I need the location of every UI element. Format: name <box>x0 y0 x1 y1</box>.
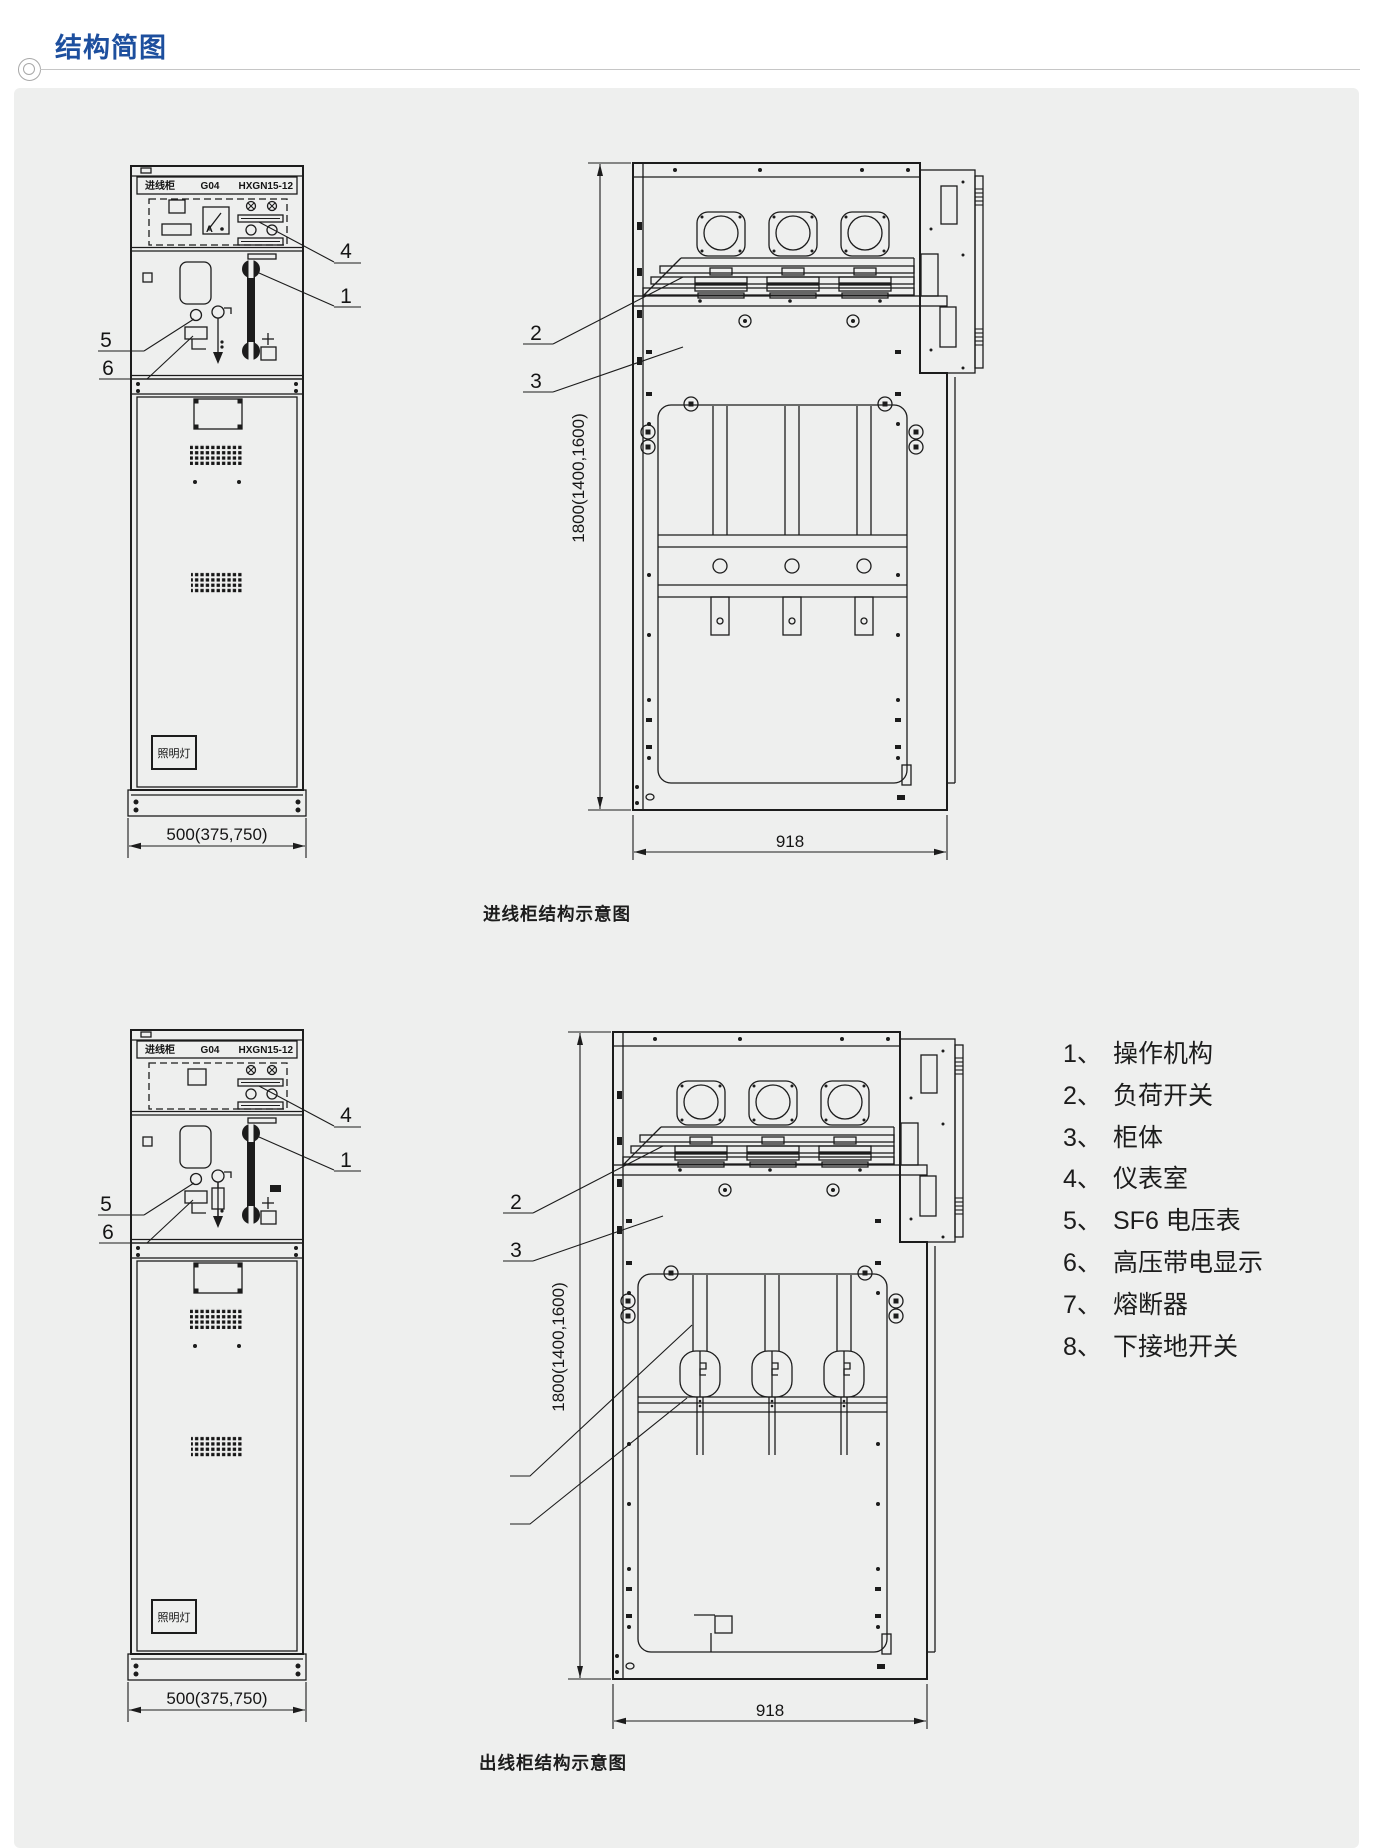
ammeter-label: A <box>206 224 213 235</box>
legend-item-1: 1、 操作机构 <box>1063 1034 1263 1076</box>
front-width-dimension: 500(375,750) <box>166 825 267 844</box>
legend-num: 3、 <box>1063 1118 1113 1154</box>
legend-num: 7、 <box>1063 1285 1113 1321</box>
callout-5: 5 <box>100 329 112 352</box>
callout-leaders <box>523 277 683 392</box>
nameplate-name: 进线柜 <box>145 179 175 192</box>
legend-num: 1、 <box>1063 1034 1113 1070</box>
legend-item-8: 8、 下接地开关 <box>1063 1327 1263 1369</box>
parts-legend: 1、 操作机构 2、 负荷开关 3、 柜体 4、 仪表室 5、 SF6 电压表 … <box>1063 1034 1263 1368</box>
callout-leaders <box>503 1146 663 1261</box>
callout-4: 4 <box>340 1104 352 1127</box>
callout-2: 2 <box>530 322 542 345</box>
outgoing-front-view: 进线柜 G04 HXGN15-12 照明灯 500(375,750) 4 1 5… <box>98 1030 361 1722</box>
callout-4: 4 <box>340 240 352 263</box>
nameplate-model: G04 <box>201 181 220 192</box>
legend-item-7: 7、 熔断器 <box>1063 1285 1263 1327</box>
legend-label: 操作机构 <box>1113 1034 1213 1070</box>
legend-label: 仪表室 <box>1113 1159 1188 1195</box>
fuse-indicator <box>188 1069 281 1216</box>
outgoing-side-view: 1800(1400,1600) 918 2 3 <box>503 1032 963 1729</box>
legend-num: 4、 <box>1063 1159 1113 1195</box>
fuse-earthing-leaders <box>510 1325 692 1524</box>
side-width-dimension: 918 <box>756 1701 784 1720</box>
legend-item-2: 2、 负荷开关 <box>1063 1076 1263 1118</box>
legend-item-5: 5、 SF6 电压表 <box>1063 1201 1263 1243</box>
legend-num: 8、 <box>1063 1327 1113 1363</box>
callout-6: 6 <box>102 357 114 380</box>
fuse-section <box>638 1275 887 1652</box>
legend-label: 高压带电显示 <box>1113 1243 1263 1279</box>
lamp-label: 照明灯 <box>158 1611 191 1624</box>
front-width-dimension: 500(375,750) <box>166 1689 267 1708</box>
lamp-label: 照明灯 <box>158 747 191 760</box>
side-height-dimension: 1800(1400,1600) <box>549 1282 568 1412</box>
callout-1: 1 <box>340 285 352 308</box>
legend-label: 负荷开关 <box>1113 1076 1213 1112</box>
callout-6: 6 <box>102 1221 114 1244</box>
legend-label: 下接地开关 <box>1113 1327 1238 1363</box>
structure-diagrams: A 进线柜 G04 HXGN15-12 照明灯 500(375,750) 4 1… <box>0 0 1373 1848</box>
outgoing-diagram-caption: 出线柜结构示意图 <box>479 1750 627 1775</box>
nameplate-type: HXGN15-12 <box>239 1045 294 1056</box>
incoming-side-view: 1800(1400,1600) 918 2 3 <box>523 163 983 860</box>
callout-leaders <box>98 222 361 379</box>
callout-leaders <box>98 1086 361 1243</box>
callout-5: 5 <box>100 1193 112 1216</box>
legend-item-3: 3、 柜体 <box>1063 1118 1263 1160</box>
legend-item-6: 6、 高压带电显示 <box>1063 1243 1263 1285</box>
side-width-dimension: 918 <box>776 832 804 851</box>
callout-2: 2 <box>510 1191 522 1214</box>
legend-label: 熔断器 <box>1113 1285 1188 1321</box>
nameplate-model: G04 <box>201 1045 220 1056</box>
busbar-section <box>658 406 907 635</box>
ammeter <box>162 200 229 235</box>
nameplate-type: HXGN15-12 <box>239 181 294 192</box>
incoming-front-view: A 进线柜 G04 HXGN15-12 照明灯 500(375,750) 4 1… <box>98 166 361 858</box>
callout-3: 3 <box>530 370 542 393</box>
incoming-diagram-caption: 进线柜结构示意图 <box>483 901 631 926</box>
legend-label: 柜体 <box>1113 1118 1163 1154</box>
legend-num: 2、 <box>1063 1076 1113 1112</box>
side-height-dimension: 1800(1400,1600) <box>569 413 588 543</box>
legend-num: 5、 <box>1063 1201 1113 1237</box>
nameplate-name: 进线柜 <box>145 1043 175 1056</box>
callout-3: 3 <box>510 1239 522 1262</box>
legend-num: 6、 <box>1063 1243 1113 1279</box>
callout-1: 1 <box>340 1149 352 1172</box>
legend-label: SF6 电压表 <box>1113 1201 1241 1237</box>
legend-item-4: 4、 仪表室 <box>1063 1159 1263 1201</box>
